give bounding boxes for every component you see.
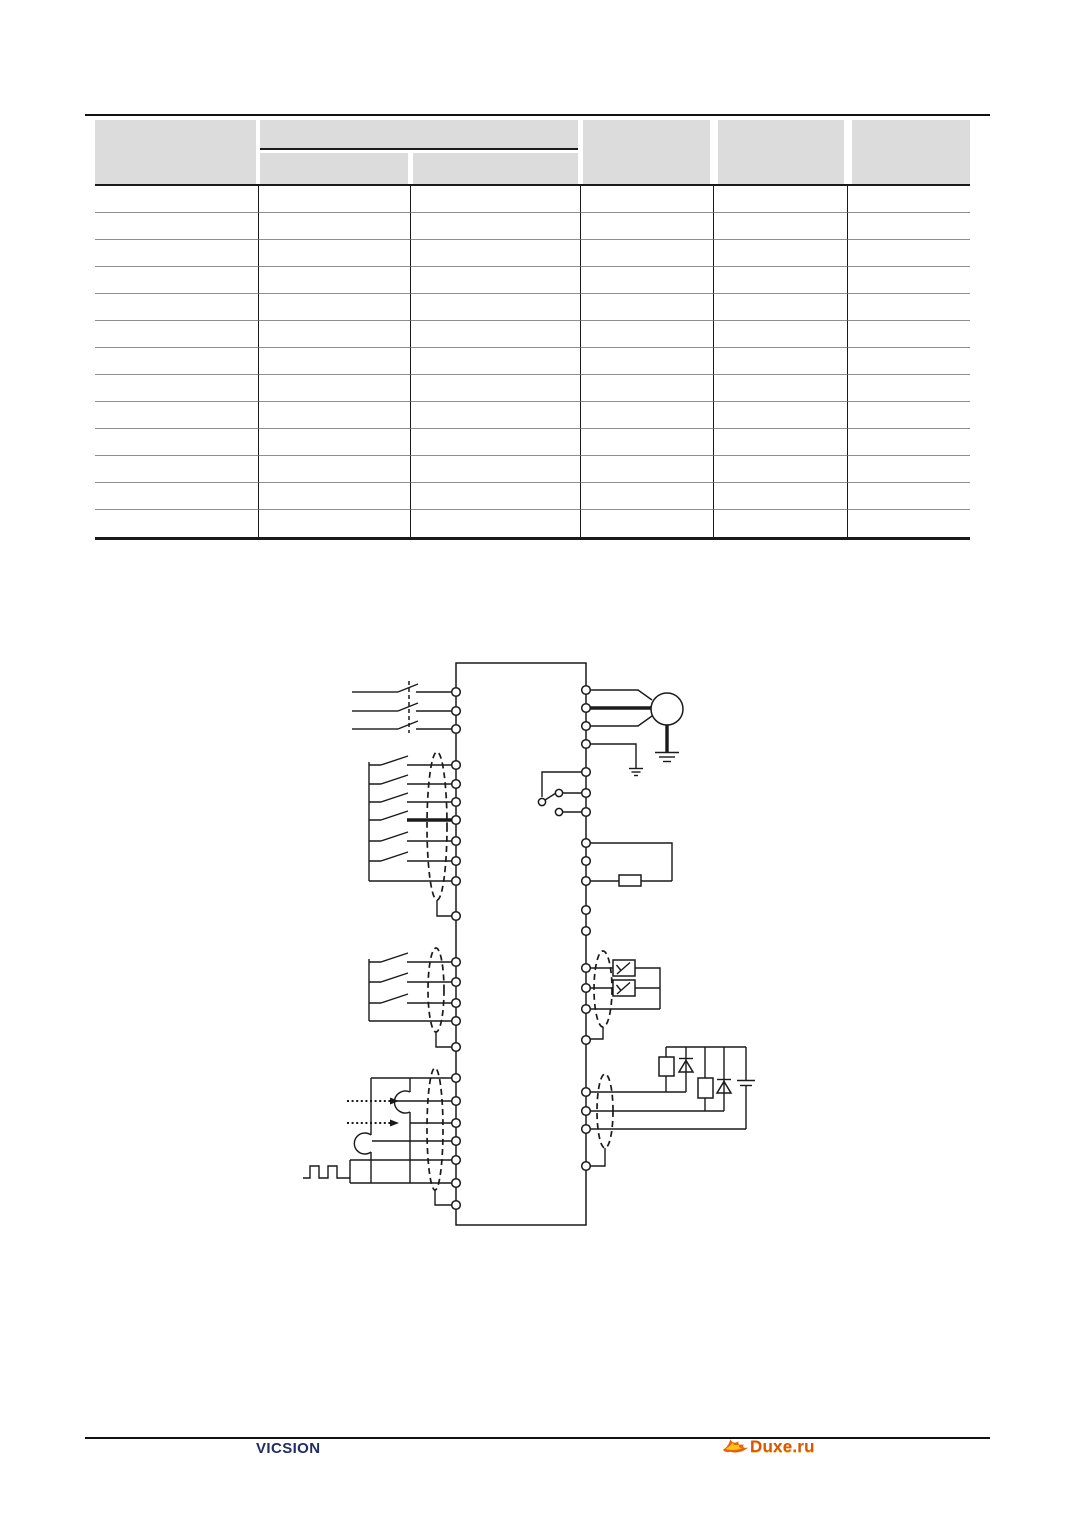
terminal-node [452, 1119, 461, 1128]
table-cell [95, 213, 259, 240]
terminal-node [452, 688, 461, 697]
header-cell-4 [583, 120, 710, 184]
terminal-node [452, 1097, 461, 1106]
table-cell [95, 510, 259, 537]
terminal-node [452, 816, 461, 825]
table-cell [95, 321, 259, 348]
potentiometer-icon [394, 1091, 410, 1113]
table-cell [411, 483, 581, 510]
table-cell [259, 348, 411, 375]
table-cell [259, 294, 411, 321]
spec-table [95, 120, 970, 540]
terminal-node [452, 725, 461, 734]
watermark-text: Duxe.ru [750, 1437, 815, 1457]
table-cell [714, 483, 848, 510]
three-phase-breaker-icon [352, 681, 456, 733]
table-cell [259, 267, 411, 294]
digital-input-group-2 [369, 948, 456, 1047]
table-cell [411, 267, 581, 294]
terminal-node [452, 1201, 461, 1210]
table-cell [581, 429, 714, 456]
table-cell [714, 429, 848, 456]
table-cell [95, 429, 259, 456]
terminal-node [582, 1162, 591, 1171]
terminal-node [582, 839, 591, 848]
terminal-node [452, 1179, 461, 1188]
terminal-node [452, 978, 461, 987]
terminal-node [582, 740, 591, 749]
terminal-node [582, 1125, 591, 1134]
table-cell [95, 402, 259, 429]
terminal-node [452, 912, 461, 921]
table-cell [259, 213, 411, 240]
table-header [95, 120, 970, 186]
arrow-icon [390, 1120, 399, 1127]
table-cell [259, 429, 411, 456]
table-cell [581, 510, 714, 537]
terminal-node [582, 857, 591, 866]
table-cell [95, 456, 259, 483]
table-cell [848, 267, 970, 294]
table-cell [714, 267, 848, 294]
analog-output-meters [586, 951, 660, 1039]
table-cell [259, 402, 411, 429]
table-cell [259, 510, 411, 537]
header-subcell-2 [413, 153, 578, 184]
terminal-nodes [452, 686, 591, 1210]
table-cell [95, 483, 259, 510]
terminal-node [452, 1074, 461, 1083]
document-page: VICSION Duxe.ru [0, 0, 1075, 1519]
relay-coil-icon [659, 1057, 674, 1076]
terminal-node [582, 906, 591, 915]
top-rule [85, 114, 990, 116]
table-cell [714, 456, 848, 483]
terminal-node [555, 808, 562, 815]
table-cell [714, 213, 848, 240]
header-cell-group [260, 120, 578, 150]
table-cell [411, 510, 581, 537]
braking-resistor-icon [586, 843, 672, 886]
header-cell-5 [718, 120, 844, 184]
terminal-node [452, 798, 461, 807]
table-cell [848, 294, 970, 321]
table-cell [411, 321, 581, 348]
table-cell [714, 321, 848, 348]
terminal-node [452, 1156, 461, 1165]
terminal-node [582, 704, 591, 713]
terminal-node [555, 789, 562, 796]
table-cell [259, 375, 411, 402]
table-cell [259, 321, 411, 348]
table-cell [581, 294, 714, 321]
table-cell [95, 240, 259, 267]
terminal-node [582, 964, 591, 973]
table-cell [95, 267, 259, 294]
terminal-node [452, 877, 461, 886]
terminal-node [582, 1005, 591, 1014]
table-cell [848, 402, 970, 429]
table-cell [411, 456, 581, 483]
table-cell [411, 402, 581, 429]
table-cell [581, 375, 714, 402]
wiring-diagram [295, 655, 765, 1232]
table-cell [581, 213, 714, 240]
table-cell [581, 483, 714, 510]
spdt-switch-icon [542, 772, 586, 812]
pulse-signal-icon [303, 1166, 350, 1178]
terminal-node [452, 761, 461, 770]
terminal-node [452, 707, 461, 716]
table-cell [95, 294, 259, 321]
analog-input-section [303, 1068, 456, 1205]
terminal-node [452, 780, 461, 789]
table-cell [411, 213, 581, 240]
terminal-node [582, 808, 591, 817]
terminal-node [582, 1107, 591, 1116]
table-cell [95, 375, 259, 402]
terminal-node [582, 768, 591, 777]
header-cell-1 [95, 120, 256, 184]
motor-icon [586, 690, 683, 762]
table-cell [848, 375, 970, 402]
table-cell [581, 186, 714, 213]
header-cell-6 [852, 120, 970, 184]
watermark-logo: Duxe.ru [722, 1436, 815, 1457]
table-cell [848, 186, 970, 213]
terminal-node [582, 1036, 591, 1045]
table-cell [714, 294, 848, 321]
table-cell [411, 240, 581, 267]
flame-icon [722, 1436, 749, 1457]
terminal-node [582, 722, 591, 731]
table-cell [848, 348, 970, 375]
table-cell [581, 321, 714, 348]
terminal-node [582, 927, 591, 936]
table-body [95, 186, 970, 540]
terminal-node [582, 877, 591, 886]
terminal-node [452, 1017, 461, 1026]
terminal-node [582, 984, 591, 993]
table-cell [848, 483, 970, 510]
terminal-node [452, 999, 461, 1008]
header-subcell-1 [260, 153, 408, 184]
table-cell [714, 402, 848, 429]
table-cell [581, 240, 714, 267]
table-cell [259, 186, 411, 213]
table-cell [714, 240, 848, 267]
terminal-node [452, 1137, 461, 1146]
digital-input-group-1 [369, 752, 456, 916]
table-cell [95, 186, 259, 213]
table-cell [411, 294, 581, 321]
terminal-node [452, 958, 461, 967]
table-cell [259, 483, 411, 510]
table-cell [714, 510, 848, 537]
table-cell [714, 186, 848, 213]
table-cell [581, 267, 714, 294]
relay-output-section [586, 1047, 755, 1166]
terminal-node [452, 837, 461, 846]
inverter-box [456, 663, 586, 1225]
potentiometer-icon [354, 1133, 371, 1154]
table-cell [714, 375, 848, 402]
terminal-node [582, 686, 591, 695]
terminal-node [538, 798, 545, 805]
table-cell [581, 348, 714, 375]
brand-logo: VICSION [256, 1440, 320, 1457]
table-cell [848, 321, 970, 348]
earth-ground-icon [586, 744, 643, 776]
table-cell [714, 348, 848, 375]
terminal-node [452, 1043, 461, 1052]
table-cell [411, 186, 581, 213]
relay-coil-icon [698, 1078, 713, 1098]
table-cell [581, 456, 714, 483]
terminal-node [452, 857, 461, 866]
table-cell [848, 240, 970, 267]
terminal-node [582, 1088, 591, 1097]
table-cell [848, 456, 970, 483]
table-cell [848, 510, 970, 537]
table-cell [848, 429, 970, 456]
table-cell [95, 348, 259, 375]
table-cell [259, 456, 411, 483]
table-cell [581, 402, 714, 429]
table-cell [411, 375, 581, 402]
terminal-node [582, 789, 591, 798]
table-cell [411, 348, 581, 375]
table-cell [848, 213, 970, 240]
table-cell [411, 429, 581, 456]
footer-rule [85, 1437, 990, 1439]
table-cell [259, 240, 411, 267]
